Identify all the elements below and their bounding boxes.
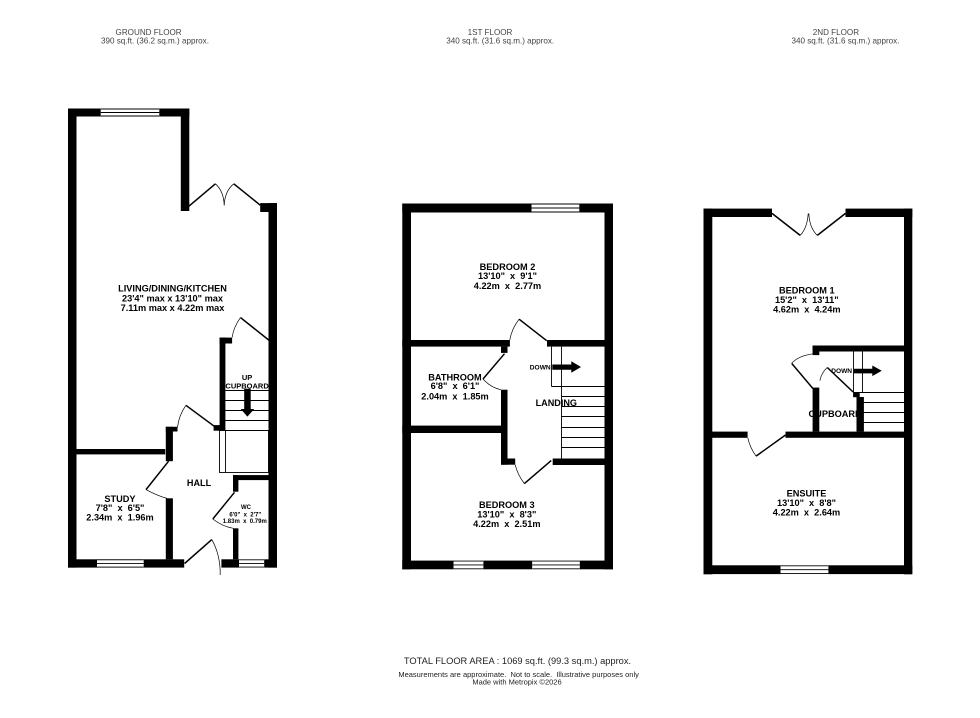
svg-text:4.22m x 2.64m: 4.22m x 2.64m [773,508,840,518]
svg-text:13'10" x 9'1": 13'10" x 9'1" [478,271,537,281]
svg-text:4.22m x 2.51m: 4.22m x 2.51m [473,519,540,529]
svg-text:CUPBOARD: CUPBOARD [225,381,269,390]
svg-text:2.04m x 1.85m: 2.04m x 1.85m [421,391,488,401]
svg-text:LIVING/DINING/KITCHEN: LIVING/DINING/KITCHEN [118,284,227,294]
svg-text:7.11m max x 4.22m max: 7.11m max x 4.22m max [121,303,226,313]
svg-text:Made with Metropix ©2026: Made with Metropix ©2026 [472,678,561,687]
svg-text:6'8" x 6'1": 6'8" x 6'1" [431,381,480,391]
svg-text:340 sq.ft. (31.6 sq.m.) approx: 340 sq.ft. (31.6 sq.m.) approx. [446,37,554,46]
svg-text:WC: WC [241,505,252,511]
svg-text:TOTAL FLOOR AREA : 1069 sq.ft.: TOTAL FLOOR AREA : 1069 sq.ft. (99.3 sq.… [404,656,631,666]
svg-text:1ST FLOOR: 1ST FLOOR [468,28,513,37]
svg-text:13'10" x 8'8": 13'10" x 8'8" [777,498,836,508]
svg-text:2ND FLOOR: 2ND FLOOR [813,28,859,37]
svg-text:340 sq.ft. (31.6 sq.m.) approx: 340 sq.ft. (31.6 sq.m.) approx. [792,37,900,46]
svg-text:4.62m x 4.24m: 4.62m x 4.24m [773,305,840,315]
svg-text:DOWN: DOWN [831,368,852,375]
svg-text:6'0" x 2'7": 6'0" x 2'7" [229,513,261,519]
svg-text:7'8" x 6'5": 7'8" x 6'5" [96,503,145,513]
svg-text:BEDROOM 3: BEDROOM 3 [479,500,535,510]
svg-text:ENSUITE: ENSUITE [787,488,827,498]
svg-text:GROUND FLOOR: GROUND FLOOR [116,28,182,37]
svg-text:DOWN: DOWN [530,365,551,372]
svg-text:1.83m x 0.79m: 1.83m x 0.79m [223,519,267,525]
svg-text:13'10" x 8'3": 13'10" x 8'3" [477,509,536,519]
svg-text:CUPBOARD: CUPBOARD [809,409,862,419]
svg-text:HALL: HALL [187,478,212,488]
svg-text:2.34m x 1.96m: 2.34m x 1.96m [86,513,153,523]
svg-text:390 sq.ft. (36.2 sq.m.) approx: 390 sq.ft. (36.2 sq.m.) approx. [101,37,209,46]
svg-text:LANDING: LANDING [536,398,577,408]
svg-text:4.22m x 2.77m: 4.22m x 2.77m [474,281,541,291]
